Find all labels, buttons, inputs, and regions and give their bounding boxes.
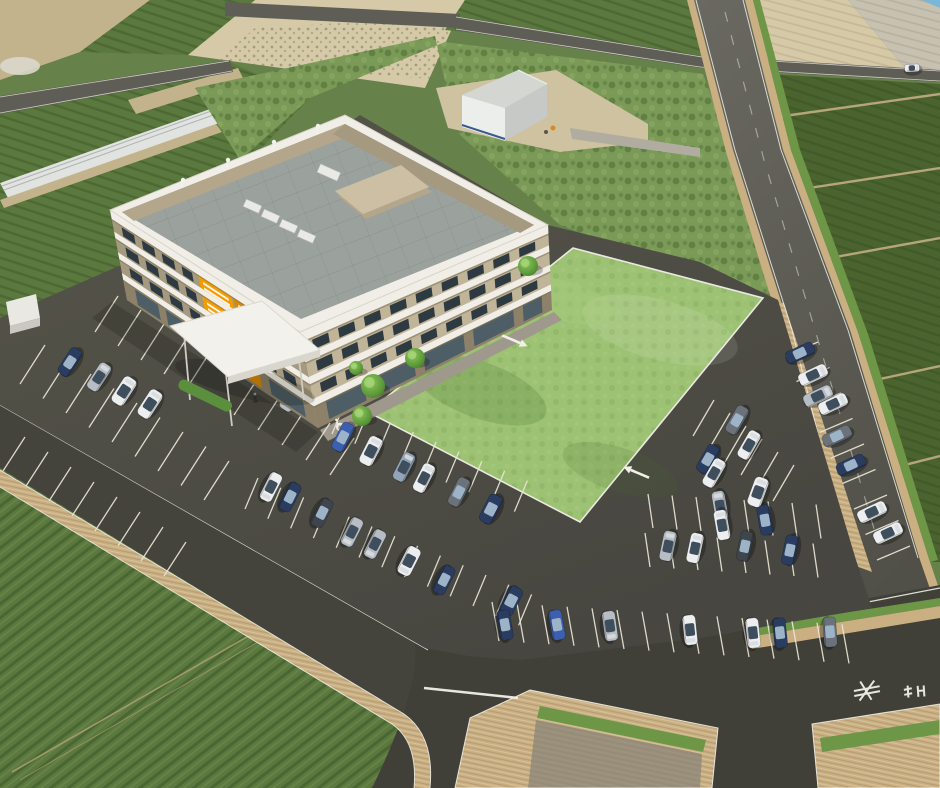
scene-canvas [0,0,940,788]
yard-junk [551,126,556,131]
dirt-patch [0,57,40,75]
aerial-rendering [0,0,940,788]
yard-junk [544,130,548,134]
